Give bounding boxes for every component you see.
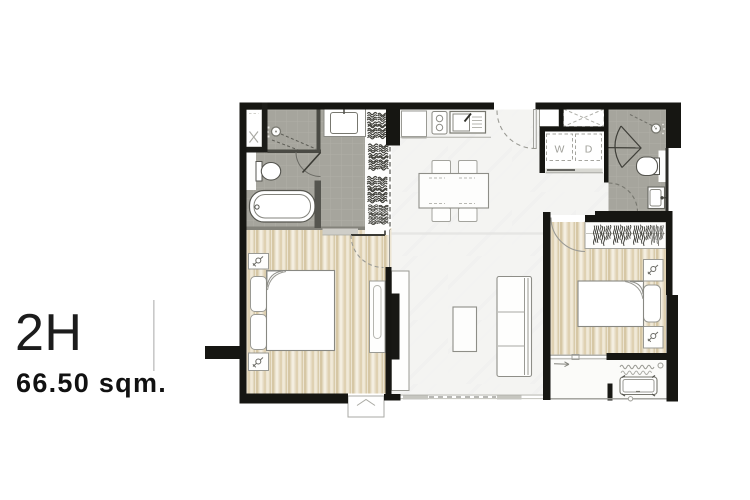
svg-text:2H: 2H	[15, 304, 82, 362]
svg-text:D: D	[585, 144, 593, 156]
svg-text:66.50 sqm.: 66.50 sqm.	[16, 368, 167, 398]
svg-text:W: W	[555, 144, 565, 156]
